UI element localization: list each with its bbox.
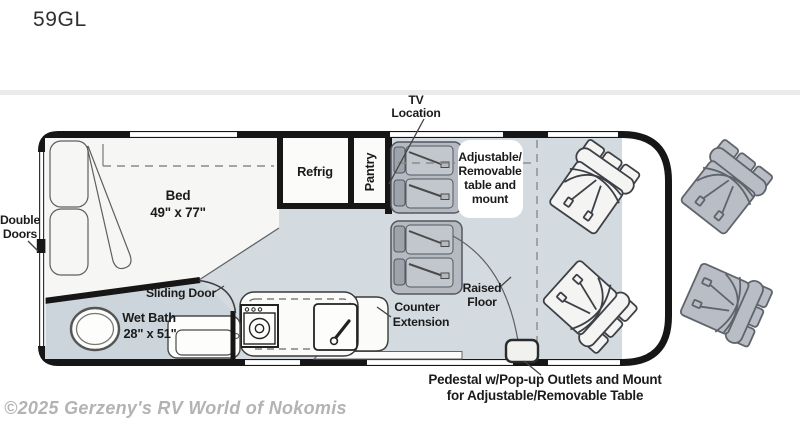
- pantry-label: Pantry: [362, 152, 377, 192]
- refrig-label: Refrig: [297, 164, 333, 179]
- svg-text:Doors: Doors: [3, 227, 38, 241]
- svg-text:table and: table and: [464, 178, 516, 192]
- wet-bath-label: Wet Bath: [122, 310, 176, 325]
- page: 59GL: [0, 0, 800, 432]
- double-doors: [37, 152, 46, 346]
- counter-extension-label: Counter: [394, 300, 440, 314]
- svg-text:Location: Location: [391, 106, 440, 120]
- raised-floor-label: Raised: [463, 281, 502, 295]
- sliding-door-label: Sliding Door: [146, 286, 216, 300]
- toilet: [71, 308, 119, 350]
- bench-seat-rear: [391, 221, 462, 294]
- pedestal-note-label: Pedestal w/Pop-up Outlets and Mount: [428, 372, 662, 387]
- svg-text:Floor: Floor: [467, 295, 497, 309]
- stove: [241, 305, 278, 347]
- sink: [314, 304, 357, 350]
- bed-label: Bed: [166, 188, 191, 203]
- counter-extension-flap: [356, 297, 388, 351]
- svg-text:Extension: Extension: [393, 315, 449, 329]
- svg-text:Removable: Removable: [458, 164, 522, 178]
- shower: [168, 316, 240, 358]
- pedestal: [506, 340, 538, 362]
- kitchen-counter: [240, 292, 388, 356]
- svg-text:for Adjustable/Removable Table: for Adjustable/Removable Table: [447, 388, 643, 403]
- wet-bath-size-label: 28" x 51": [123, 326, 176, 341]
- bed-size-label: 49" x 77": [150, 205, 206, 220]
- floorplan-diagram: Refrig Pantry: [0, 0, 800, 432]
- bench-seat-front: [391, 142, 462, 213]
- svg-text:mount: mount: [472, 192, 508, 206]
- removed-chair-top: [676, 138, 775, 239]
- double-doors-label: Double: [0, 213, 40, 227]
- removed-chair-bottom: [678, 258, 774, 349]
- svg-text:Adjustable/: Adjustable/: [458, 150, 522, 164]
- table-note-box: Adjustable/ Removable table and mount: [458, 140, 523, 218]
- tv-location-label: TV: [408, 93, 424, 107]
- watermark-copyright: ©2025 Gerzeny's RV World of Nokomis: [4, 398, 347, 419]
